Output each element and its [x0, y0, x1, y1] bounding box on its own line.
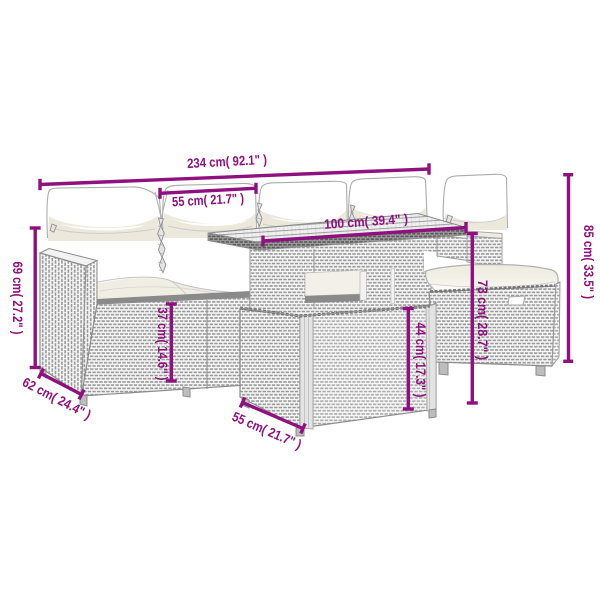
svg-text:69 cm( 27.2" ): 69 cm( 27.2" )	[10, 262, 25, 335]
svg-text:73 cm( 28.7" ): 73 cm( 28.7" )	[475, 280, 490, 360]
svg-text:85 cm( 33.5" ): 85 cm( 33.5" )	[581, 225, 596, 299]
svg-text:37 cm( 14.6" ): 37 cm( 14.6" )	[155, 308, 170, 381]
svg-text:44 cm( 17.3" ): 44 cm( 17.3" )	[413, 323, 428, 398]
